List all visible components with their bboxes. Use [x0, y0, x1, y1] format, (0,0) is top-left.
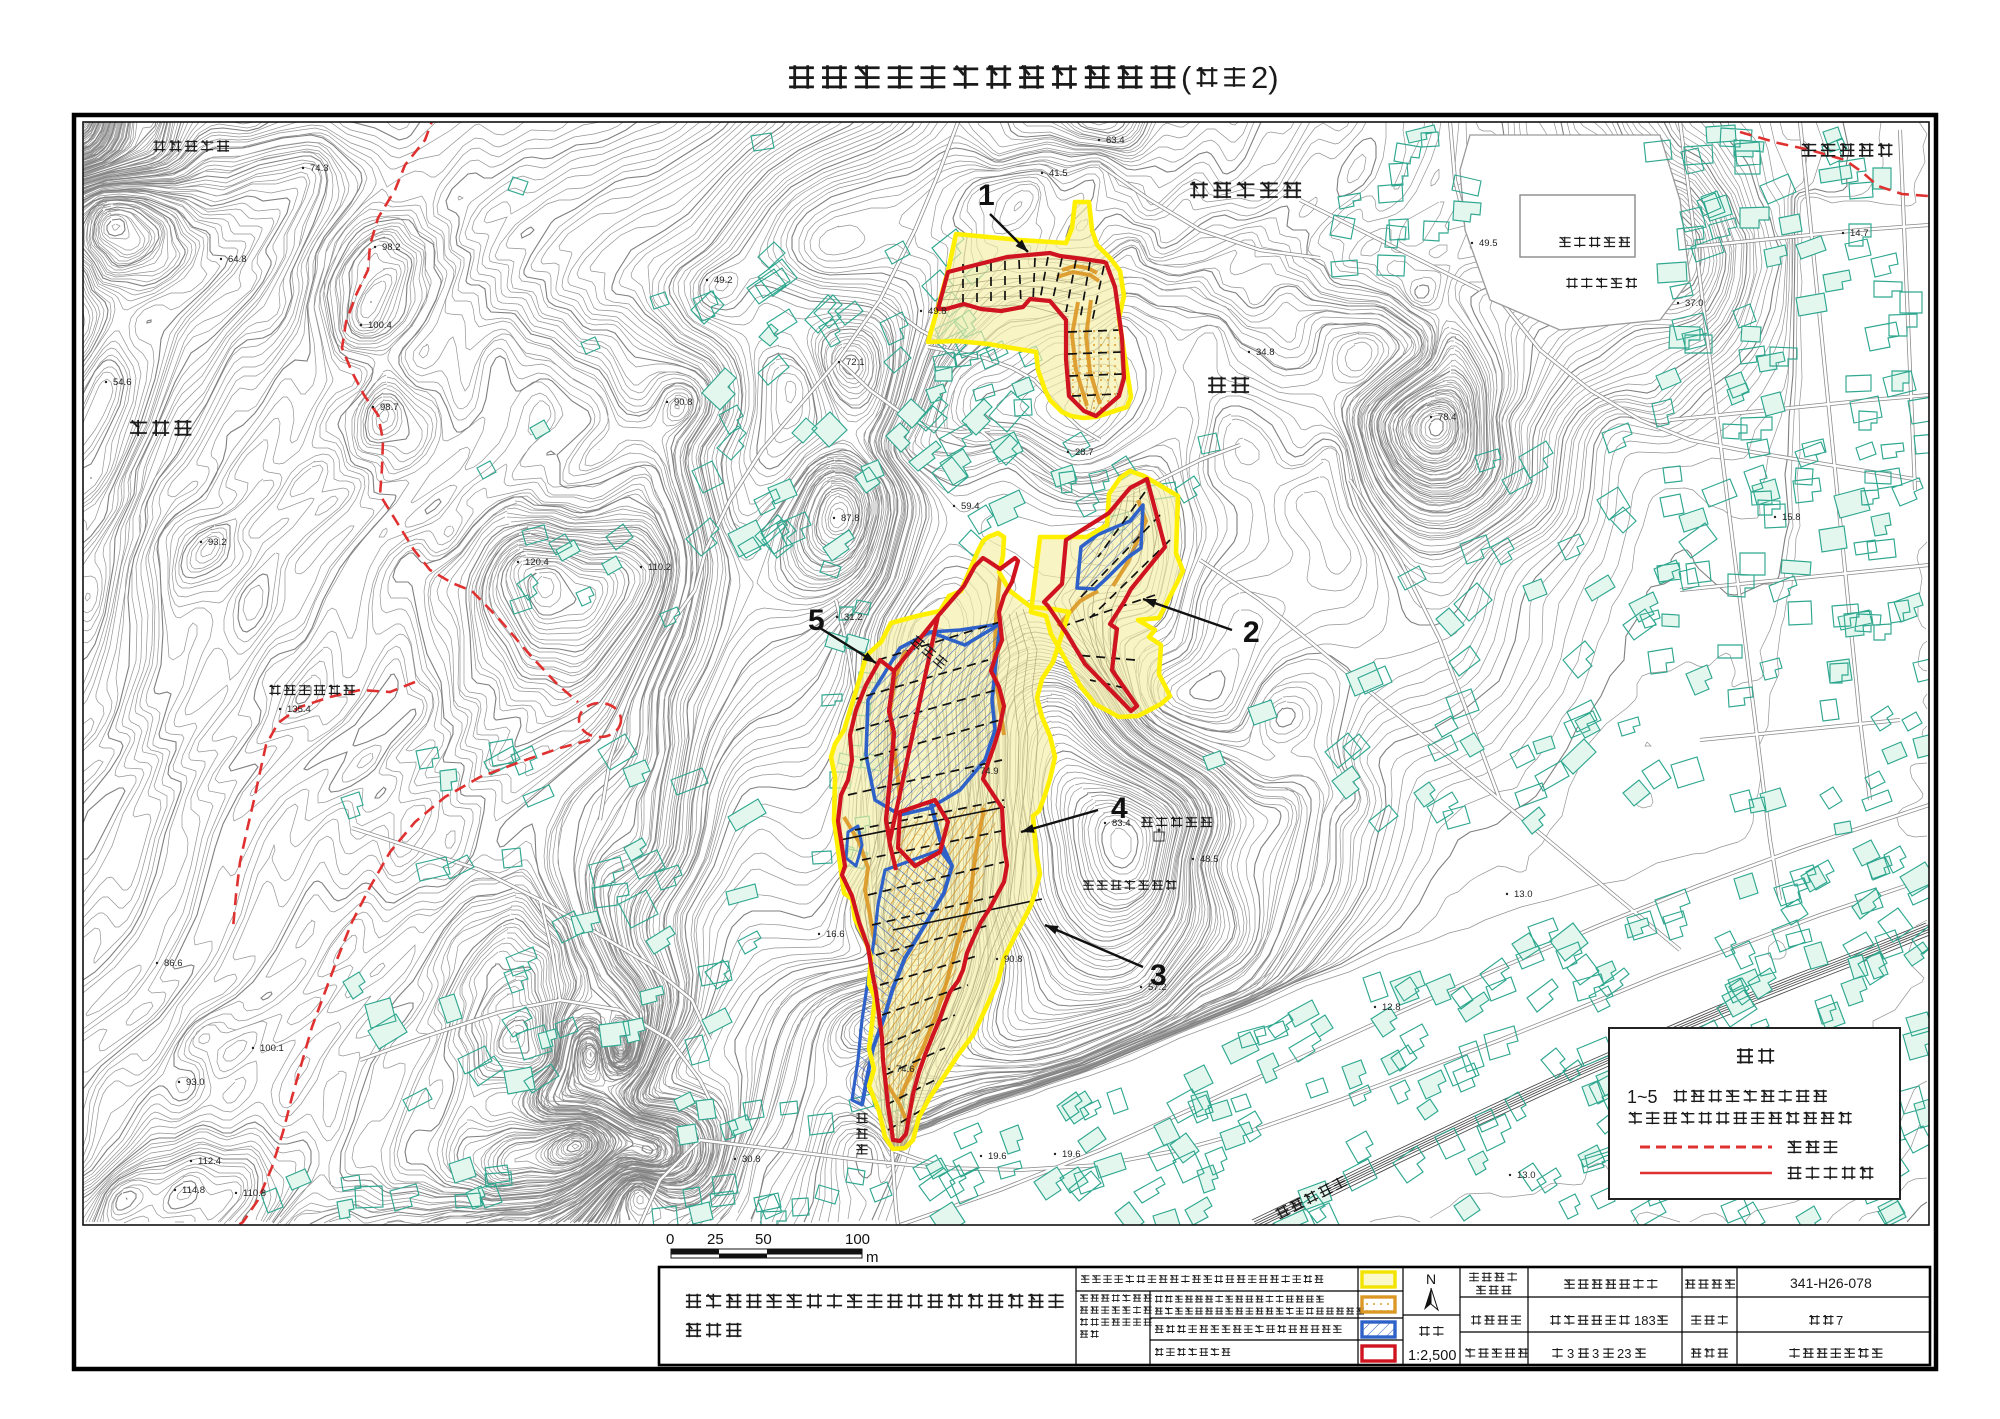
- svg-text:28.7: 28.7: [1075, 447, 1094, 458]
- svg-text:64.8: 64.8: [228, 254, 247, 265]
- svg-text:14.7: 14.7: [1850, 228, 1869, 239]
- svg-text:90.8: 90.8: [1004, 954, 1023, 965]
- svg-text:100: 100: [845, 1231, 870, 1248]
- svg-text:48.5: 48.5: [1200, 854, 1219, 865]
- svg-text:90.8: 90.8: [674, 397, 693, 408]
- svg-text:2): 2): [1251, 60, 1279, 95]
- svg-text:34.8: 34.8: [1256, 347, 1275, 358]
- svg-text:112.4: 112.4: [198, 1156, 221, 1167]
- svg-text:72.1: 72.1: [846, 357, 865, 368]
- svg-text:m: m: [866, 1249, 879, 1266]
- svg-text:110.2: 110.2: [648, 562, 671, 573]
- svg-text:114.8: 114.8: [182, 1185, 205, 1196]
- svg-text:19.6: 19.6: [1062, 1149, 1081, 1160]
- svg-text:93.0: 93.0: [186, 1077, 205, 1088]
- svg-text:120.4: 120.4: [525, 557, 549, 568]
- svg-text:49.5: 49.5: [1479, 238, 1498, 249]
- svg-text:(: (: [1181, 60, 1192, 95]
- svg-text:13.0: 13.0: [1514, 889, 1533, 900]
- svg-text:5: 5: [808, 604, 825, 637]
- svg-text:1~5: 1~5: [1627, 1087, 1658, 1107]
- svg-text:74.3: 74.3: [310, 163, 329, 174]
- svg-text:3: 3: [1150, 959, 1167, 992]
- svg-text:19.6: 19.6: [988, 1151, 1007, 1162]
- svg-text:37.0: 37.0: [1685, 298, 1704, 309]
- svg-text:63.4: 63.4: [1106, 135, 1125, 146]
- svg-text:59.4: 59.4: [961, 501, 980, 512]
- svg-text:49.2: 49.2: [714, 275, 733, 286]
- svg-text:341-H26-078: 341-H26-078: [1790, 1275, 1872, 1291]
- svg-text:2: 2: [1243, 616, 1260, 649]
- svg-text:183: 183: [1634, 1313, 1656, 1328]
- svg-text:54.6: 54.6: [113, 377, 132, 388]
- svg-text:50: 50: [755, 1231, 772, 1248]
- svg-text:93.2: 93.2: [208, 537, 227, 548]
- svg-text:87.8: 87.8: [841, 513, 860, 524]
- svg-text:31.2: 31.2: [844, 612, 863, 623]
- svg-text:23: 23: [1617, 1346, 1631, 1361]
- svg-text:49.8: 49.8: [928, 306, 947, 317]
- svg-text:78.4: 78.4: [1438, 412, 1457, 423]
- svg-text:12.8: 12.8: [1382, 1002, 1401, 1013]
- svg-text:7: 7: [1836, 1313, 1843, 1328]
- svg-text:100.4: 100.4: [368, 320, 392, 331]
- svg-text:74.9: 74.9: [980, 766, 999, 777]
- svg-text:135.4: 135.4: [287, 704, 311, 715]
- svg-text:98.7: 98.7: [380, 402, 399, 413]
- svg-text:15.8: 15.8: [1782, 512, 1801, 523]
- svg-text:16.6: 16.6: [826, 929, 845, 940]
- svg-text:4: 4: [1111, 792, 1128, 825]
- svg-text:13.0: 13.0: [1517, 1170, 1536, 1181]
- svg-text:1:2,500: 1:2,500: [1408, 1348, 1456, 1364]
- svg-text:N: N: [1426, 1271, 1436, 1287]
- svg-text:74.6: 74.6: [896, 1064, 915, 1075]
- svg-text:86.6: 86.6: [164, 958, 183, 969]
- svg-text:100.1: 100.1: [260, 1043, 284, 1054]
- svg-text:25: 25: [707, 1231, 724, 1248]
- svg-text:110.8: 110.8: [243, 1188, 266, 1199]
- svg-text:0: 0: [666, 1231, 674, 1248]
- svg-text:41.5: 41.5: [1049, 168, 1068, 179]
- svg-text:3: 3: [1567, 1346, 1574, 1361]
- svg-text:1: 1: [978, 179, 995, 212]
- svg-text:30.8: 30.8: [742, 1154, 761, 1165]
- svg-text:3: 3: [1592, 1346, 1599, 1361]
- svg-text:98.2: 98.2: [382, 242, 401, 253]
